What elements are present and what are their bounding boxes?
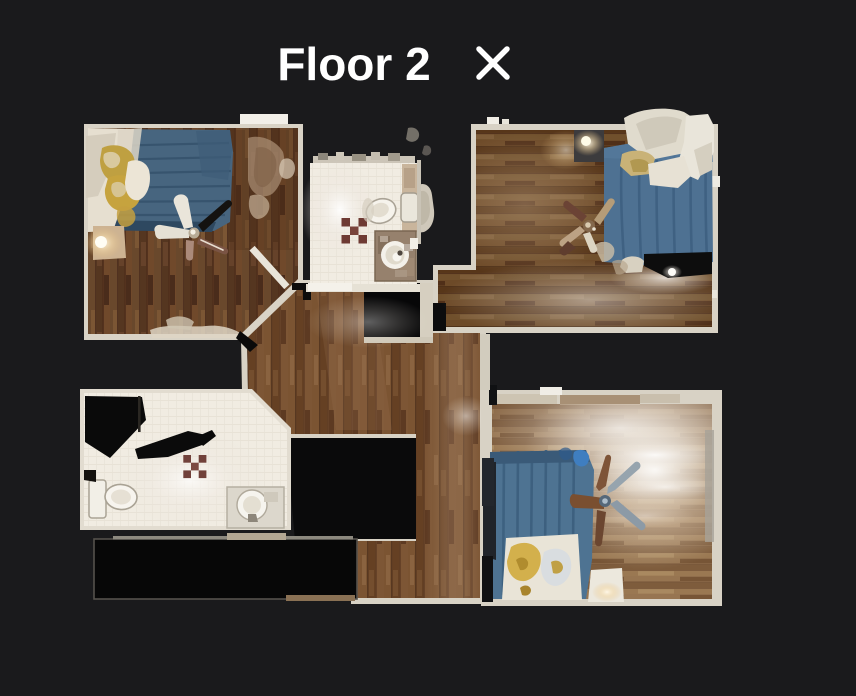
svg-text:Floor 2: Floor 2 (277, 38, 430, 90)
